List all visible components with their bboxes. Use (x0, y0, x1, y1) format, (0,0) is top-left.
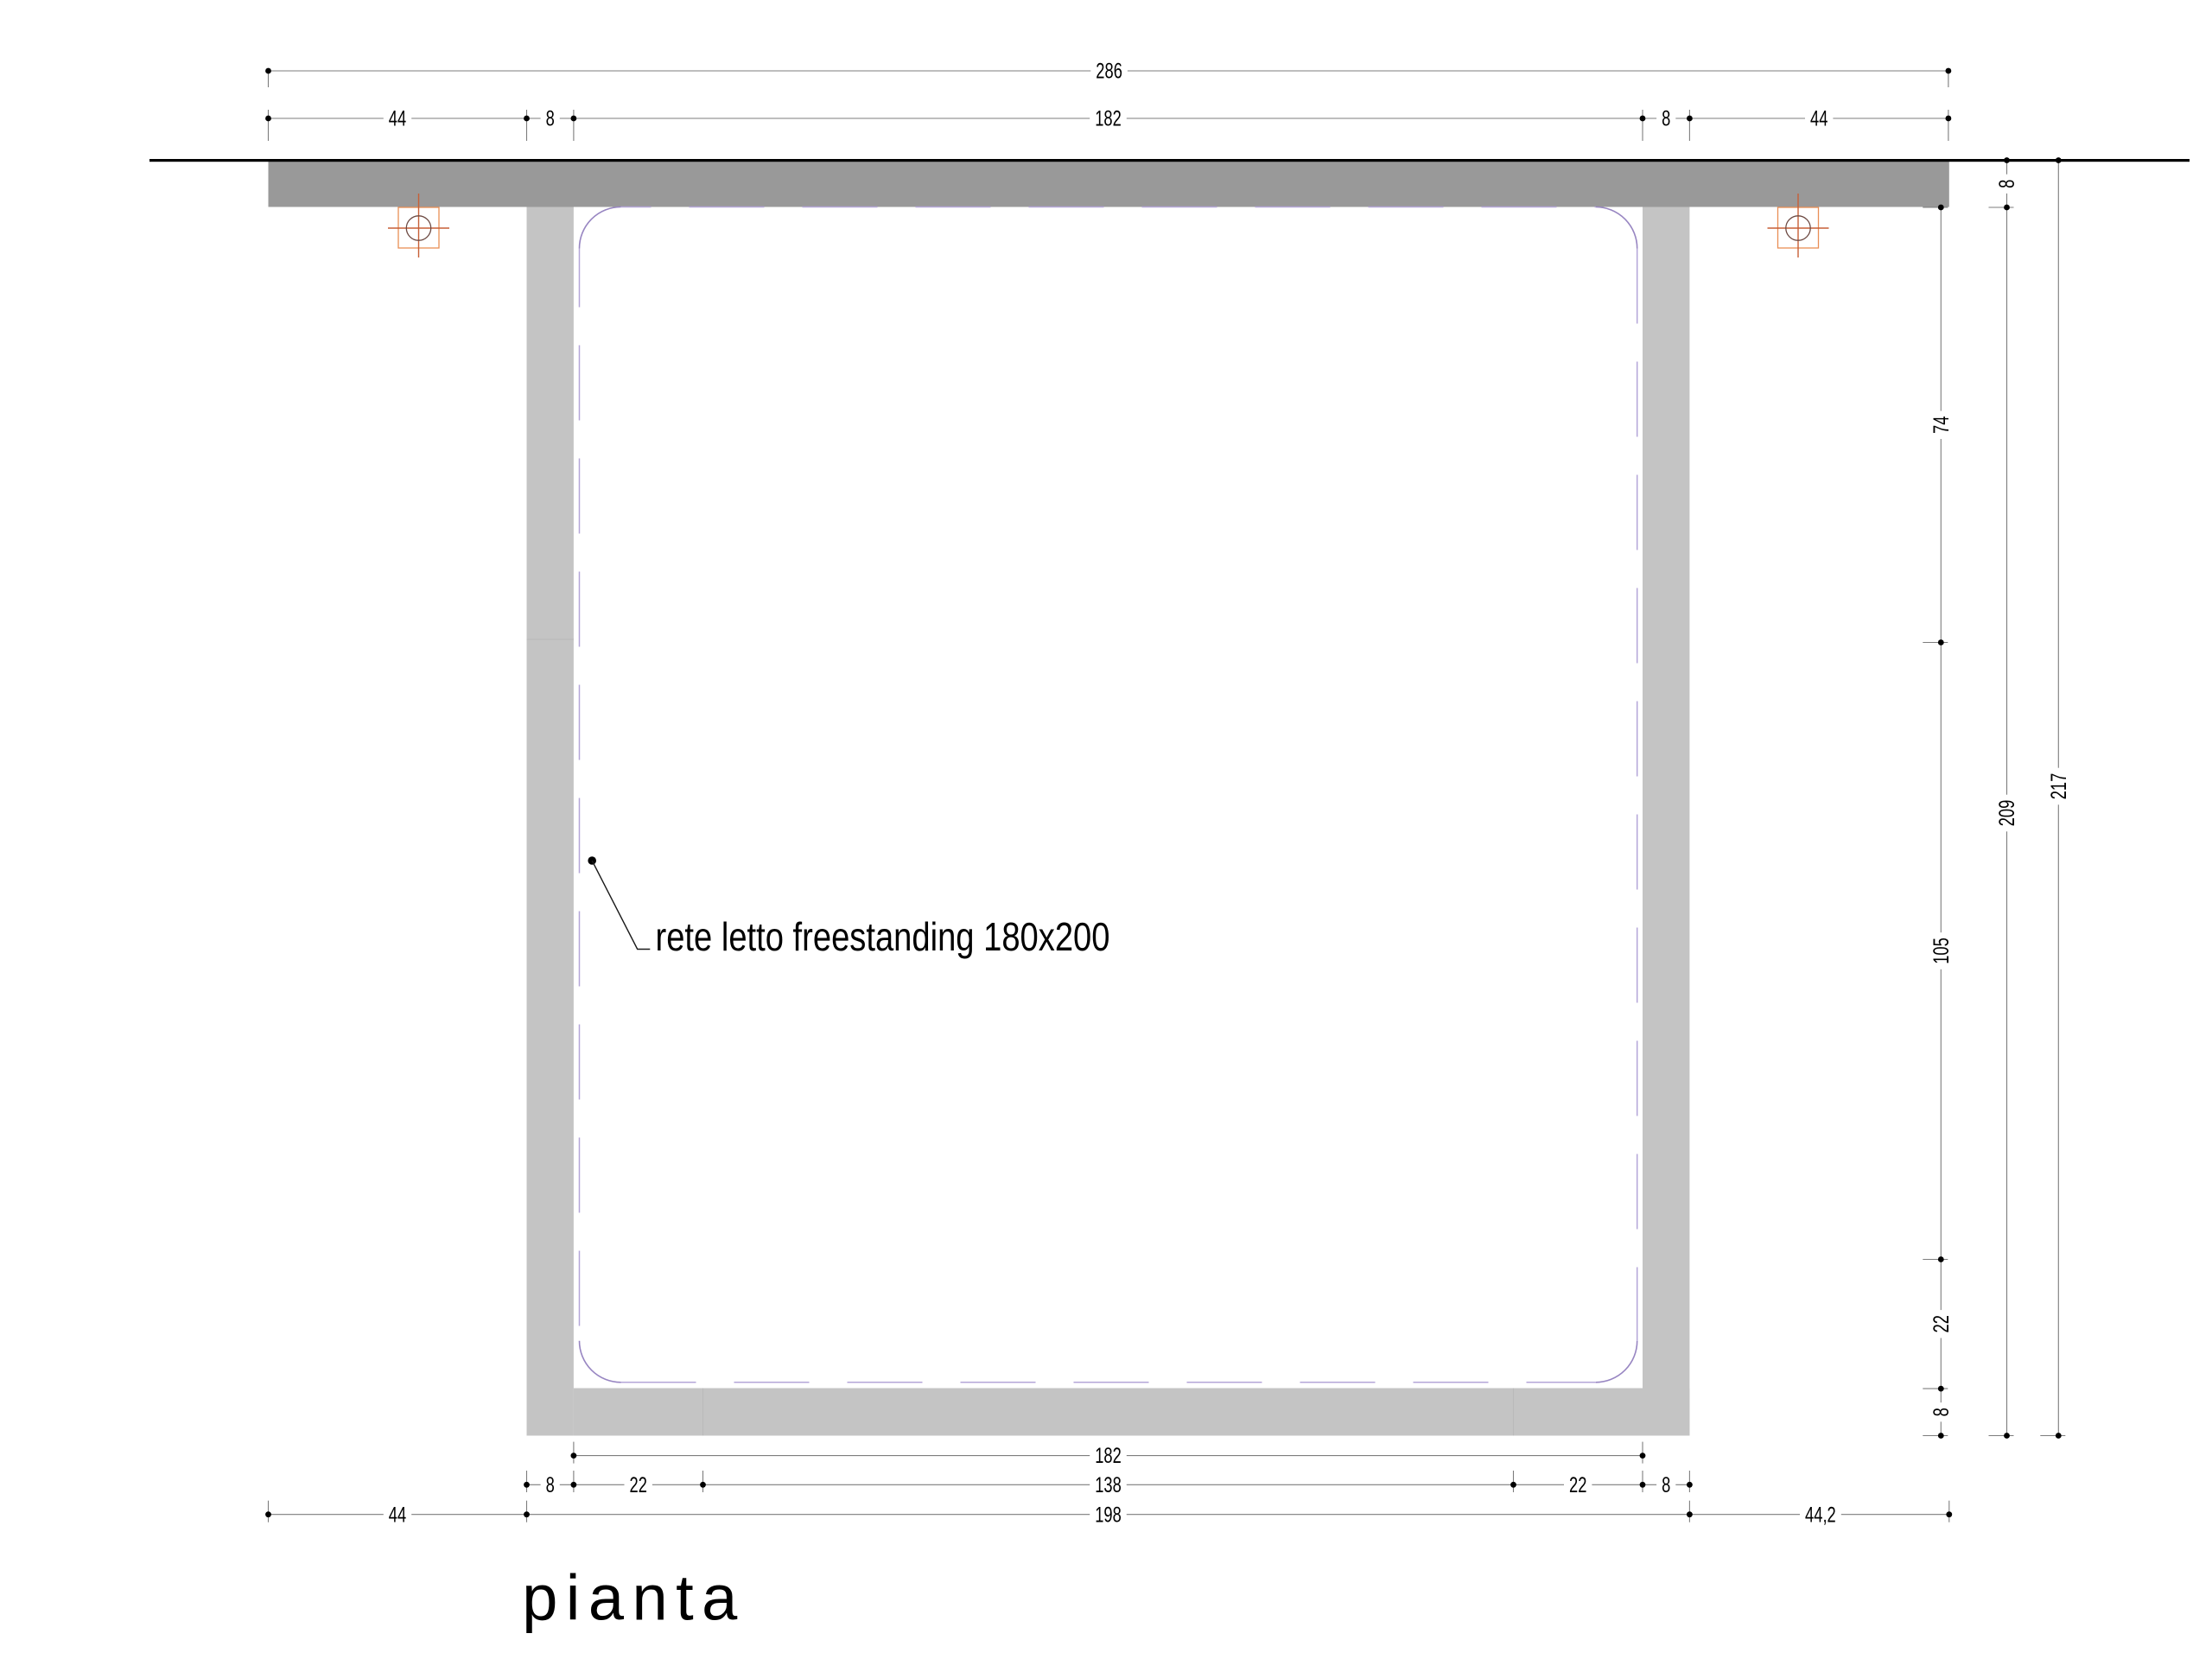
svg-text:8: 8 (1662, 107, 1670, 131)
svg-text:44: 44 (389, 107, 406, 131)
svg-text:8: 8 (1929, 1408, 1954, 1416)
svg-text:209: 209 (1995, 800, 2019, 827)
svg-text:44: 44 (1810, 107, 1827, 131)
svg-text:rete letto freestanding 180x20: rete letto freestanding 180x200 (656, 914, 1110, 959)
svg-text:182: 182 (1095, 107, 1122, 131)
svg-text:198: 198 (1095, 1503, 1122, 1527)
svg-text:138: 138 (1095, 1473, 1122, 1497)
svg-text:44,2: 44,2 (1805, 1503, 1836, 1527)
svg-text:44: 44 (389, 1503, 406, 1527)
svg-text:22: 22 (1929, 1315, 1954, 1332)
svg-text:286: 286 (1096, 60, 1122, 84)
svg-text:74: 74 (1929, 416, 1954, 434)
svg-text:22: 22 (1569, 1473, 1586, 1497)
svg-text:8: 8 (546, 1473, 555, 1497)
svg-text:182: 182 (1095, 1444, 1122, 1468)
svg-text:22: 22 (630, 1473, 647, 1497)
svg-text:8: 8 (1995, 180, 2019, 188)
svg-text:8: 8 (1662, 1473, 1670, 1497)
svg-text:217: 217 (2047, 773, 2071, 800)
svg-text:8: 8 (546, 107, 555, 131)
svg-text:105: 105 (1929, 938, 1954, 964)
